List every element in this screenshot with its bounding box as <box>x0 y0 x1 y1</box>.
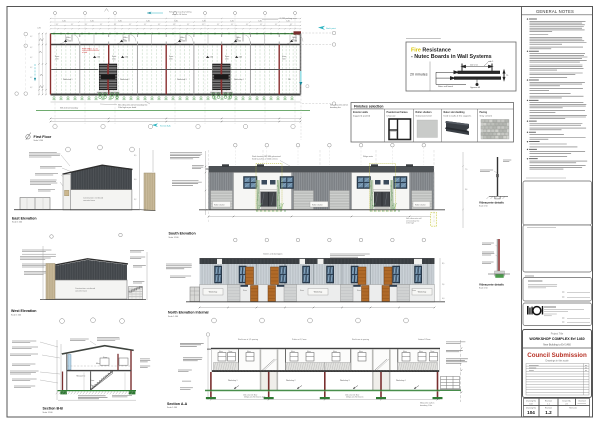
svg-text:W5: W5 <box>288 79 291 81</box>
svg-text:12m²: 12m² <box>225 58 229 61</box>
svg-text:3,45: 3,45 <box>286 20 290 22</box>
svg-text:1.8m high as per detail: 1.8m high as per detail <box>118 106 137 109</box>
svg-text:Store: Store <box>243 289 247 292</box>
svg-text:Mezz: Mezz <box>333 351 337 353</box>
svg-text:1.2: 1.2 <box>545 410 552 415</box>
svg-text:2,00: 2,00 <box>125 57 128 59</box>
svg-text:4,2: 4,2 <box>30 77 32 79</box>
svg-text:1,7: 1,7 <box>144 24 147 26</box>
svg-text:WORKSHOP COMPLEX Erf 1460: WORKSHOP COMPLEX Erf 1460 <box>529 337 584 341</box>
svg-text:Mezz: Mezz <box>229 351 233 353</box>
svg-text:3,45: 3,45 <box>118 20 122 22</box>
svg-text:2,6: 2,6 <box>442 284 444 286</box>
svg-text:Ridge vents: Ridge vents <box>363 155 373 158</box>
svg-text:Mezz: Mezz <box>419 351 423 353</box>
svg-text:Roller shutter: Roller shutter <box>214 203 225 206</box>
svg-text:Store: Store <box>412 289 416 292</box>
svg-text:12m²: 12m² <box>169 58 173 61</box>
svg-text:Scale 1:50: Scale 1:50 <box>479 205 488 207</box>
svg-text:Paving: Paving <box>480 112 488 114</box>
svg-text:1,7: 1,7 <box>187 24 190 26</box>
svg-text:8,5: 8,5 <box>442 263 444 265</box>
svg-text:Revision: Revision <box>545 401 552 403</box>
svg-text:Workshop 1: Workshop 1 <box>228 380 238 382</box>
svg-text:Scale 1:100: Scale 1:100 <box>167 407 177 409</box>
svg-text:Scale 1:100: Scale 1:100 <box>168 316 178 318</box>
svg-text:area on GF below: area on GF below <box>172 13 188 16</box>
svg-text:1.1: 1.1 <box>547 403 550 405</box>
svg-text:2,00: 2,00 <box>210 57 213 59</box>
svg-text:7,5: 7,5 <box>465 169 467 171</box>
svg-text:Workshop 4: Workshop 4 <box>234 79 244 81</box>
svg-text:4,2: 4,2 <box>30 87 32 89</box>
svg-text:1,7: 1,7 <box>129 24 132 26</box>
svg-text:Nutec slat cladding: Nutec slat cladding <box>444 111 466 114</box>
svg-text:1,7: 1,7 <box>173 24 176 26</box>
svg-text:Roof truss at 1,2 spacing: Roof truss at 1,2 spacing <box>238 338 258 341</box>
svg-text:3,6: 3,6 <box>465 189 467 191</box>
svg-text:25mpa on 250 micron dpm: 25mpa on 250 micron dpm <box>244 396 266 398</box>
svg-text:Charcoal: Charcoal <box>387 115 396 118</box>
svg-text:Workshop: Workshop <box>314 291 322 294</box>
svg-text:Roller shutters: Roller shutters <box>416 111 433 114</box>
svg-text:Project Title: Project Title <box>551 333 564 336</box>
svg-text:4,2: 4,2 <box>30 47 32 49</box>
svg-text:East Elevation: East Elevation <box>12 217 37 221</box>
svg-text:boundary 1.8m: boundary 1.8m <box>420 405 432 407</box>
svg-text:Workshop 4: Workshop 4 <box>396 380 406 382</box>
svg-text:Roof truss at spacing: Roof truss at spacing <box>352 338 369 341</box>
svg-text:fixed to walls & first support: fixed to walls & first supports <box>444 115 473 118</box>
svg-text:1,7: 1,7 <box>217 24 220 26</box>
svg-text:Section B-B: Section B-B <box>43 407 64 411</box>
svg-text:4,2: 4,2 <box>30 36 32 38</box>
svg-text:Grey cement: Grey cement <box>480 115 493 118</box>
svg-text:Checked: Checked <box>578 401 585 403</box>
svg-text:3,2: 3,2 <box>134 199 136 201</box>
svg-text:Workshop 1: Workshop 1 <box>63 79 73 81</box>
svg-text:Scale 1:100: Scale 1:100 <box>11 314 21 316</box>
svg-text:Drawing No: Drawing No <box>526 400 536 403</box>
svg-text:Roller shutter: Roller shutter <box>312 203 323 206</box>
svg-text:3,45: 3,45 <box>258 20 262 22</box>
svg-text:Gutters and downpipes: Gutters and downpipes <box>263 253 282 256</box>
svg-text:12m²: 12m² <box>282 58 286 61</box>
svg-text:3,45: 3,45 <box>146 20 150 22</box>
svg-text:Workshop: Workshop <box>418 291 426 294</box>
svg-text:Scale 1:100: Scale 1:100 <box>34 140 44 142</box>
svg-text:3,45: 3,45 <box>202 20 206 22</box>
svg-text:1,7: 1,7 <box>275 24 278 26</box>
svg-text:Mezz: Mezz <box>247 351 251 353</box>
svg-text:Section A-A: Section A-A <box>160 125 171 128</box>
svg-text:Scale 1:100: Scale 1:100 <box>12 222 22 224</box>
svg-text:103: 103 <box>529 403 532 405</box>
svg-text:25mpa on 250 micron: 25mpa on 250 micron <box>346 396 363 398</box>
svg-text:2,00: 2,00 <box>238 41 241 43</box>
svg-text:1,7: 1,7 <box>56 24 59 26</box>
svg-text:FIRE WALL to u/s: FIRE WALL to u/s <box>82 48 98 51</box>
svg-text:2,00: 2,00 <box>294 41 297 43</box>
svg-text:104: 104 <box>527 410 535 415</box>
svg-text:0,0: 0,0 <box>442 298 444 300</box>
svg-text:Store: Store <box>357 289 361 292</box>
svg-text:Council Submission: Council Submission <box>527 352 587 359</box>
svg-text:Mezz: Mezz <box>219 351 223 353</box>
svg-text:1,7: 1,7 <box>202 24 205 26</box>
svg-text:Fire Resistance: Fire Resistance <box>411 48 451 54</box>
svg-text:1,7: 1,7 <box>85 24 88 26</box>
svg-text:fixed to purlins at 1200 centr: fixed to purlins at 1200 centres <box>252 157 278 160</box>
svg-text:1,7: 1,7 <box>260 24 263 26</box>
svg-text:side 1: side 1 <box>488 61 494 63</box>
svg-text:20 minutes: 20 minutes <box>410 73 428 77</box>
svg-text:12m²: 12m² <box>55 58 59 61</box>
svg-text:3,45: 3,45 <box>90 20 94 22</box>
svg-text:8,5: 8,5 <box>134 155 136 157</box>
svg-text:Drawings in this scale: Drawings in this scale <box>545 360 569 363</box>
svg-text:Mezz: Mezz <box>291 351 295 353</box>
svg-text:Remarks: Remarks <box>569 407 577 410</box>
svg-text:- Nutec Boards in Wall Systems: - Nutec Boards in Wall Systems <box>411 54 492 60</box>
svg-text:1,7: 1,7 <box>158 24 161 26</box>
svg-text:bagged & painted: bagged & painted <box>353 115 371 118</box>
svg-text:102 x 51: 102 x 51 <box>470 64 479 66</box>
svg-text:Store: Store <box>300 289 304 292</box>
svg-text:1,7: 1,7 <box>100 24 103 26</box>
svg-text:12m²: 12m² <box>112 58 116 61</box>
svg-text:Section A-A: Section A-A <box>167 402 188 406</box>
svg-text:Vibracrete details: Vibracrete details <box>479 201 504 205</box>
svg-text:New Building to Erf 1460: New Building to Erf 1460 <box>543 344 571 347</box>
svg-text:1,7: 1,7 <box>290 24 293 26</box>
svg-text:GENERAL NOTES: GENERAL NOTES <box>536 9 574 14</box>
svg-text:Gypsum fill: Gypsum fill <box>470 87 480 89</box>
svg-text:2,00: 2,00 <box>239 57 242 59</box>
svg-text:West Elevation: West Elevation <box>11 309 37 313</box>
svg-text:4,2: 4,2 <box>30 57 32 59</box>
svg-text:Nutec wall board: Nutec wall board <box>438 85 453 88</box>
svg-text:Vibracrete details: Vibracrete details <box>479 283 504 287</box>
svg-text:Galvanised steel: Galvanised steel <box>416 115 433 118</box>
svg-text:1,7: 1,7 <box>71 24 74 26</box>
svg-text:1,285: 1,285 <box>37 28 41 30</box>
svg-text:concrete base: concrete base <box>83 199 95 202</box>
svg-text:First Floor: First Floor <box>34 135 52 139</box>
svg-text:2,00: 2,00 <box>68 41 71 43</box>
svg-text:Scale 1:100: Scale 1:100 <box>43 412 53 414</box>
svg-text:Mezz: Mezz <box>307 351 311 353</box>
svg-text:1,285 parking area: 1,285 parking area <box>280 18 298 20</box>
svg-text:JG: JG <box>565 403 568 405</box>
svg-text:3,45: 3,45 <box>62 20 66 22</box>
svg-text:6,0: 6,0 <box>134 179 136 181</box>
svg-text:2,00: 2,00 <box>97 57 100 59</box>
svg-text:2,00: 2,00 <box>124 41 127 43</box>
svg-text:Workshop 3: Workshop 3 <box>177 79 187 81</box>
svg-text:3,45: 3,45 <box>174 20 178 22</box>
svg-text:Workshop 3: Workshop 3 <box>340 380 350 382</box>
svg-text:1.8m high: 1.8m high <box>406 223 414 225</box>
svg-text:Drawn By: Drawn By <box>562 400 570 403</box>
svg-text:NGL 0.00 on boundary: NGL 0.00 on boundary <box>60 108 78 110</box>
svg-text:4,2: 4,2 <box>30 67 32 69</box>
svg-text:Store: Store <box>90 379 94 382</box>
svg-text:Mezz: Mezz <box>359 351 363 353</box>
svg-text:1,7: 1,7 <box>231 24 234 26</box>
svg-text:Mezz: Mezz <box>403 351 407 353</box>
svg-text:concrete base: concrete base <box>75 290 87 293</box>
svg-text:South Elevation: South Elevation <box>169 232 196 236</box>
svg-text:Gutters 125mm: Gutters 125mm <box>418 338 431 341</box>
svg-text:Exterior walls: Exterior walls <box>353 111 369 114</box>
svg-text:Workshop 2: Workshop 2 <box>286 380 296 382</box>
svg-text:1,7: 1,7 <box>246 24 249 26</box>
svg-text:Workshop: Workshop <box>209 291 217 294</box>
svg-text:North point: North point <box>326 27 336 30</box>
svg-text:Powdercoat frames: Powdercoat frames <box>387 111 409 114</box>
svg-text:Mezz: Mezz <box>431 351 435 353</box>
svg-text:Finishes selection: Finishes selection <box>354 105 383 109</box>
svg-text:3,45: 3,45 <box>230 20 234 22</box>
svg-text:Scale 1:50: Scale 1:50 <box>479 287 488 289</box>
svg-text:Scale 1:100: Scale 1:100 <box>169 237 179 239</box>
svg-text:Roller shutter: Roller shutter <box>415 203 426 206</box>
svg-text:of roof: of roof <box>82 52 88 54</box>
svg-text:boundary line: boundary line <box>330 107 341 109</box>
svg-text:Workshop 2: Workshop 2 <box>120 79 130 81</box>
svg-text:North Elevation Internal: North Elevation Internal <box>168 311 209 315</box>
svg-text:2,00: 2,00 <box>182 41 185 43</box>
svg-text:1,7: 1,7 <box>114 24 117 26</box>
svg-text:Purlins at 1,2 max: Purlins at 1,2 max <box>292 338 306 341</box>
